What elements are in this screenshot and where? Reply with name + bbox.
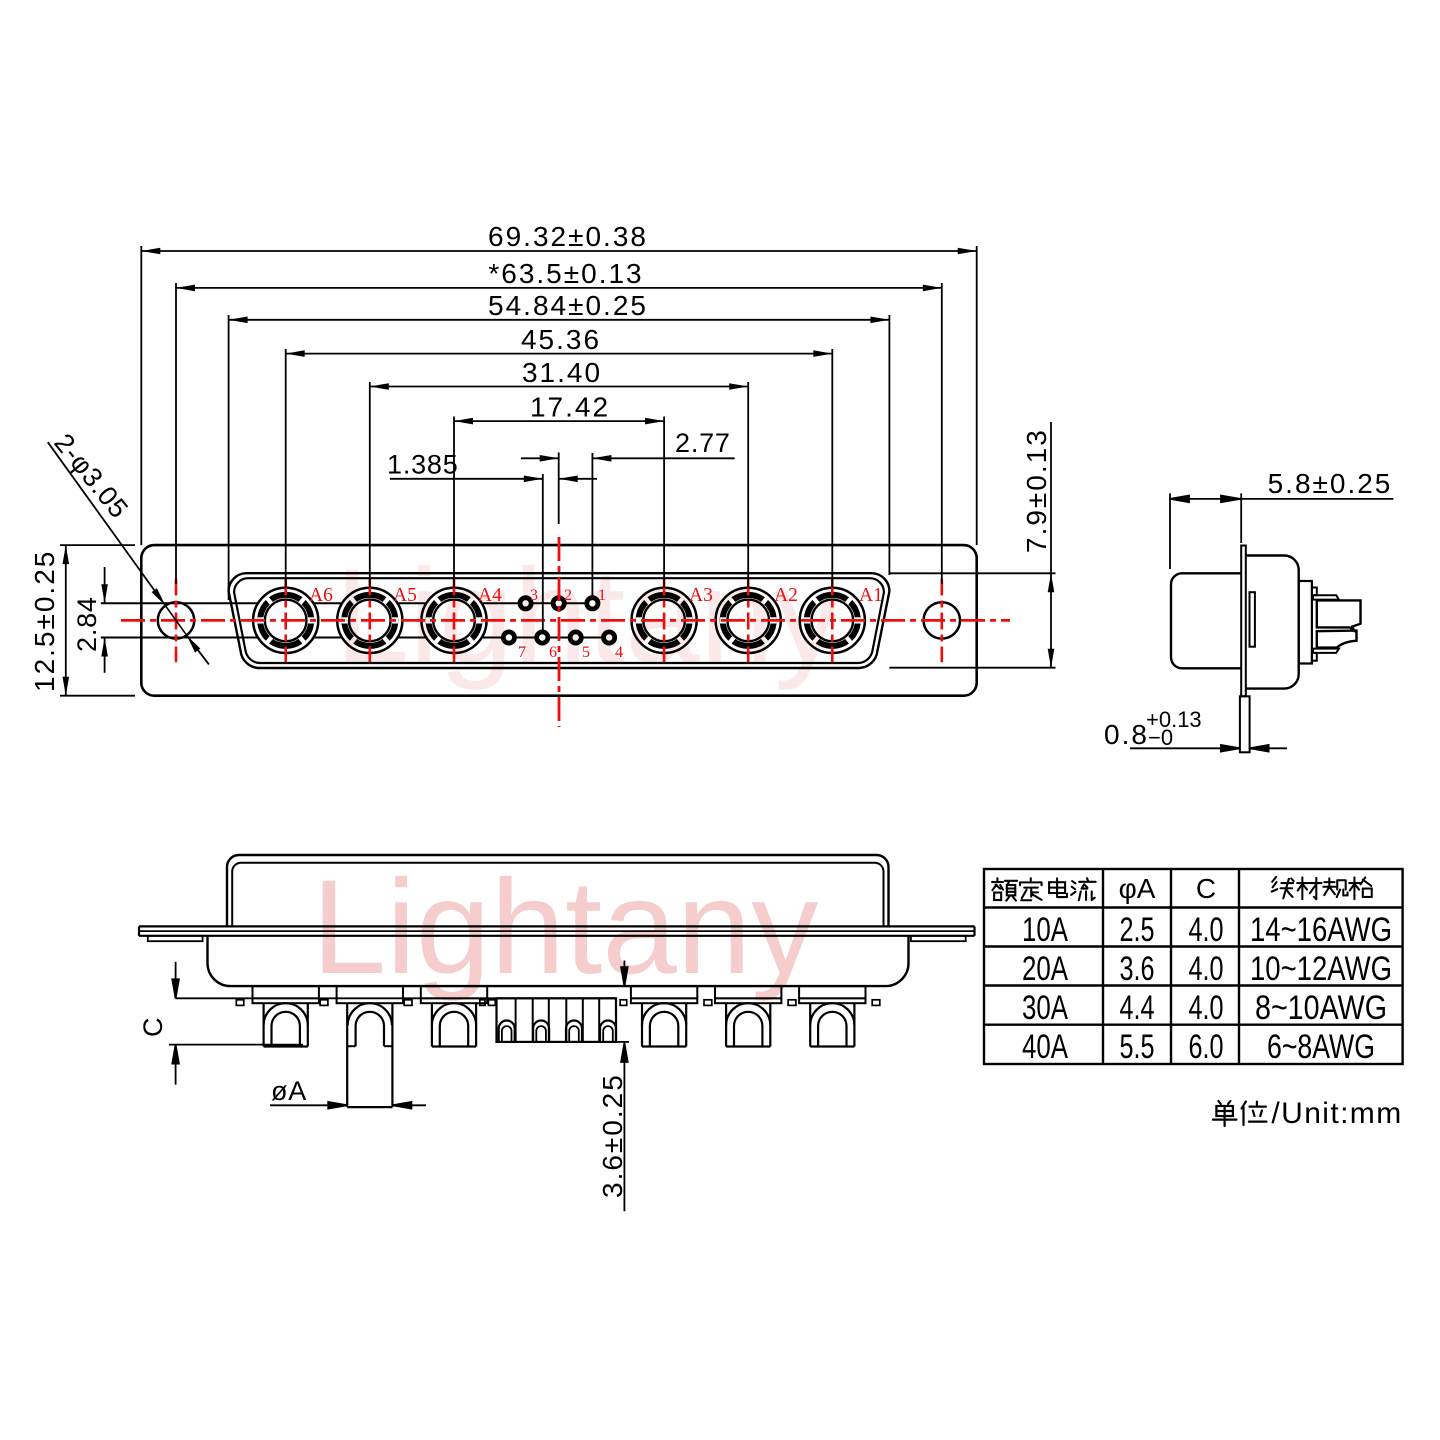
svg-text:A5: A5 bbox=[393, 585, 417, 606]
svg-text:A3: A3 bbox=[689, 585, 713, 606]
svg-text:10A: 10A bbox=[1022, 911, 1068, 949]
svg-text:40A: 40A bbox=[1022, 1028, 1068, 1066]
svg-text:30A: 30A bbox=[1022, 989, 1068, 1027]
svg-text:5.8±0.25: 5.8±0.25 bbox=[1268, 468, 1393, 499]
svg-text:6.0: 6.0 bbox=[1189, 1028, 1224, 1066]
svg-text:69.32±0.38: 69.32±0.38 bbox=[488, 221, 648, 252]
svg-text:5.5: 5.5 bbox=[1120, 1028, 1155, 1066]
svg-text:20A: 20A bbox=[1022, 950, 1068, 988]
svg-text:2.84: 2.84 bbox=[72, 596, 102, 652]
svg-text:3: 3 bbox=[530, 587, 538, 604]
svg-text:C: C bbox=[138, 1017, 168, 1037]
svg-text:0.8: 0.8 bbox=[1104, 719, 1149, 750]
svg-text:*63.5±0.13: *63.5±0.13 bbox=[488, 258, 643, 289]
svg-text:10~12AWG: 10~12AWG bbox=[1250, 950, 1392, 988]
svg-text:6: 6 bbox=[549, 644, 557, 661]
svg-text:Lightany: Lightany bbox=[335, 542, 842, 691]
svg-text:φA: φA bbox=[1119, 873, 1156, 904]
svg-text:A2: A2 bbox=[774, 585, 798, 606]
svg-text:17.42: 17.42 bbox=[530, 392, 610, 423]
svg-text:3.6±0.25: 3.6±0.25 bbox=[597, 1073, 628, 1198]
svg-text:7: 7 bbox=[518, 644, 526, 661]
svg-text:1: 1 bbox=[598, 587, 606, 604]
svg-text:5: 5 bbox=[582, 644, 590, 661]
svg-text:31.40: 31.40 bbox=[522, 357, 602, 388]
svg-text:12.5±0.25: 12.5±0.25 bbox=[29, 550, 60, 692]
svg-text:8~10AWG: 8~10AWG bbox=[1255, 989, 1387, 1027]
svg-text:/Unit:mm: /Unit:mm bbox=[1271, 1097, 1402, 1130]
svg-text:6~8AWG: 6~8AWG bbox=[1267, 1028, 1375, 1066]
svg-text:4.0: 4.0 bbox=[1189, 950, 1224, 988]
svg-text:2.5: 2.5 bbox=[1120, 911, 1155, 949]
svg-text:14~16AWG: 14~16AWG bbox=[1250, 911, 1392, 949]
svg-text:C: C bbox=[1196, 873, 1216, 904]
svg-text:4: 4 bbox=[615, 644, 623, 661]
svg-text:A4: A4 bbox=[478, 585, 502, 606]
svg-text:2: 2 bbox=[564, 587, 572, 604]
svg-text:1.385: 1.385 bbox=[387, 450, 459, 480]
svg-text:4.0: 4.0 bbox=[1189, 989, 1224, 1027]
svg-text:54.84±0.25: 54.84±0.25 bbox=[488, 290, 648, 321]
svg-text:4.0: 4.0 bbox=[1189, 911, 1224, 949]
svg-text:A6: A6 bbox=[309, 585, 333, 606]
svg-text:øA: øA bbox=[271, 1076, 307, 1106]
svg-text:4.4: 4.4 bbox=[1120, 989, 1155, 1027]
svg-text:A1: A1 bbox=[859, 585, 883, 606]
svg-text:−0: −0 bbox=[1148, 725, 1173, 750]
svg-text:3.6: 3.6 bbox=[1120, 950, 1155, 988]
svg-text:2.77: 2.77 bbox=[675, 428, 731, 458]
svg-text:45.36: 45.36 bbox=[521, 324, 601, 355]
svg-text:7.9±0.13: 7.9±0.13 bbox=[1021, 428, 1052, 553]
